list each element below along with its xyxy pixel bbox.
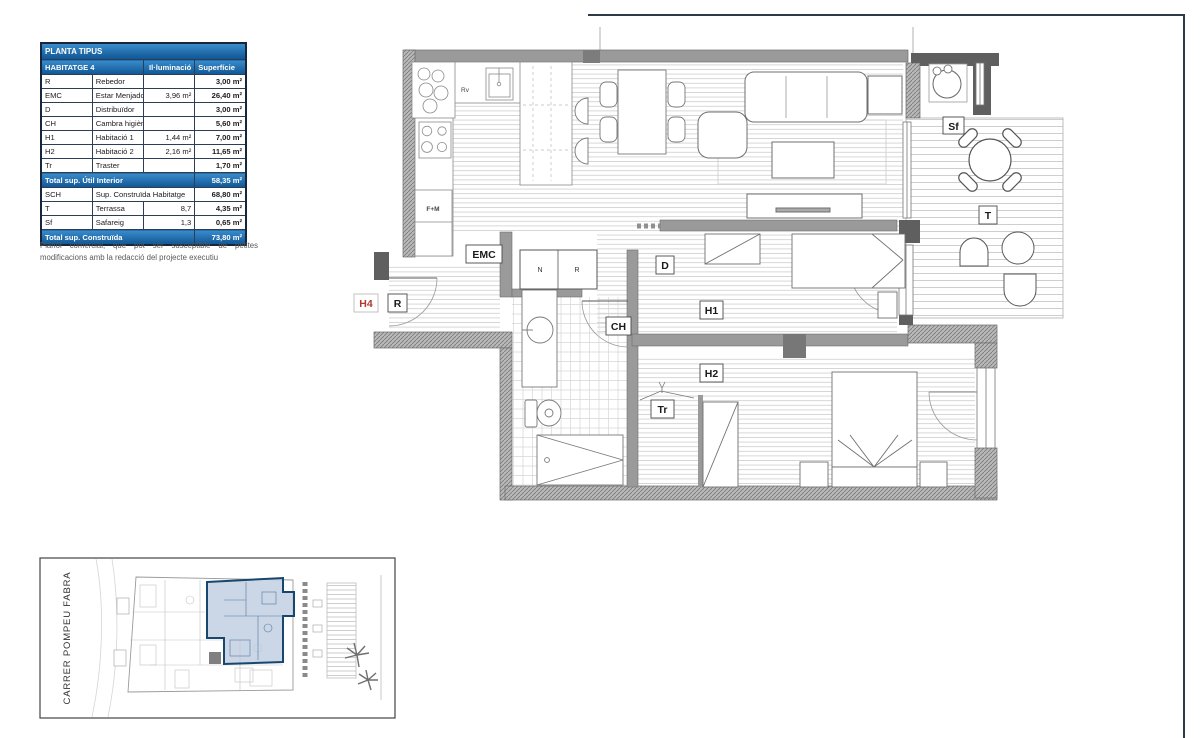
wall-entry-pier	[374, 252, 389, 280]
surface-table-container: PLANTA TIPUS HABITATGE 4 Il·luminació Su…	[40, 42, 247, 246]
laundry	[929, 64, 967, 102]
label-cambra-higienica: CH	[606, 317, 631, 335]
dining-table	[618, 70, 666, 154]
label-emc: EMC	[466, 245, 502, 263]
wall-h1-h2	[632, 334, 908, 346]
kitchen-corner-sink	[412, 62, 455, 118]
label-habitacio2: H2	[700, 364, 723, 382]
wall-h2-east-top	[975, 343, 997, 368]
svg-text:R: R	[394, 298, 402, 310]
site-balcony	[117, 598, 129, 614]
site-stairs	[327, 583, 356, 678]
closet-n-label: N	[537, 267, 542, 274]
wall-ne-band	[908, 325, 997, 343]
commercial-note: Plànol comercial, que pot ser susceptibl…	[40, 240, 258, 264]
label-distribuidor: D	[656, 256, 674, 274]
label-terrassa: T	[979, 206, 997, 224]
lounge-chair	[1004, 274, 1036, 306]
dining-chair	[668, 82, 685, 107]
h2-nightstand-right	[920, 462, 947, 487]
armchair	[698, 112, 747, 158]
site-stairwell	[209, 652, 221, 664]
wall-sf-west	[906, 63, 920, 118]
terrace-table	[969, 139, 1011, 181]
table-row: R Rebedor 3,00 m²	[41, 75, 246, 89]
svg-text:CH: CH	[611, 321, 626, 333]
svg-text:Sf: Sf	[948, 121, 959, 133]
wall-entry-east	[500, 232, 512, 297]
vanity-sink	[522, 290, 557, 387]
h1-nightstand	[878, 292, 897, 318]
wall-bath-east	[627, 250, 638, 487]
dining-chair	[600, 117, 617, 142]
table-row: CH Cambra higiènica 5,60 m²	[41, 117, 246, 131]
sofa	[745, 72, 867, 122]
shower	[537, 435, 623, 485]
label-traster: Tr	[651, 400, 674, 418]
wall-traster	[698, 395, 703, 487]
label-safareig: Sf	[943, 117, 964, 134]
wall-h1-north	[660, 220, 897, 231]
lounge-chair	[960, 238, 988, 266]
coffee-table	[772, 142, 834, 178]
svg-text:EMC: EMC	[472, 249, 496, 261]
wall-bath-west	[500, 348, 512, 500]
table-row: T Terrassa 8,7 4,35 m²	[41, 202, 246, 216]
total-util-row: Total sup. Útil Interior 58,35 m²	[41, 173, 246, 188]
column-h1-h2	[783, 334, 806, 358]
tv	[776, 208, 830, 212]
col-header-name: HABITATGE 4	[41, 60, 144, 75]
table-row: Tr Traster 1,70 m²	[41, 159, 246, 173]
label-unit-h4: H4	[354, 294, 378, 312]
pier-h1-window	[899, 315, 913, 325]
svg-text:T: T	[985, 210, 992, 222]
built-surface-row: SCH Sup. Construïda Habitatge 68,80 m²	[41, 188, 246, 202]
street-label: CARRER POMPEU FABRA	[62, 572, 73, 705]
h2-bed	[832, 372, 917, 487]
cooktop	[419, 122, 451, 158]
svg-text:H2: H2	[705, 368, 719, 380]
svg-text:H4: H4	[359, 298, 373, 310]
wall-joint	[583, 50, 600, 63]
kitchen-island	[520, 62, 572, 185]
window-h2	[977, 368, 995, 448]
label-fm: F+M	[426, 206, 439, 213]
dining-chair	[600, 82, 617, 107]
wall-entry-south	[374, 332, 512, 348]
side-table	[868, 76, 902, 114]
svg-text:D: D	[661, 260, 669, 272]
table-row: D Distribuïdor 3,00 m²	[41, 103, 246, 117]
table-row: H1 Habitació 1 1,44 m² 7,00 m²	[41, 131, 246, 145]
h2-wardrobe	[703, 402, 738, 487]
svg-text:Tr: Tr	[658, 404, 668, 416]
col-header-illumination: Il·luminació	[144, 60, 195, 75]
wall-south	[505, 486, 997, 500]
h1-desk	[705, 234, 760, 264]
main-floorplan: N R	[354, 50, 1063, 500]
table-title: PLANTA TIPUS	[41, 43, 246, 60]
wall-north	[405, 50, 908, 62]
lounge-table	[1002, 232, 1034, 264]
label-habitacio1: H1	[700, 301, 723, 319]
tv-console	[747, 194, 862, 218]
window-living-terrace	[903, 122, 911, 218]
label-rv: Rv	[461, 87, 470, 94]
site-plan: CARRER POMPEU FABRA	[40, 558, 395, 718]
fridge-microwave-unit	[415, 190, 452, 256]
toilet	[525, 400, 561, 427]
label-rebedor: R	[388, 294, 407, 312]
table-row: EMC Estar Menjador Cuina 3,96 m² 26,40 m…	[41, 89, 246, 103]
dining-chair	[668, 117, 685, 142]
surface-table: PLANTA TIPUS HABITATGE 4 Il·luminació Su…	[40, 42, 247, 246]
h1-bed	[792, 234, 905, 288]
table-row: H2 Habitació 2 2,16 m² 11,65 m²	[41, 145, 246, 159]
window-sf	[976, 63, 984, 105]
h2-nightstand-left	[800, 462, 828, 487]
wall-h2-east-bottom	[975, 448, 997, 498]
svg-text:H1: H1	[705, 305, 719, 317]
plan-sheet: N R	[0, 0, 1200, 738]
site-balcony	[114, 650, 126, 666]
closet-r-label: R	[574, 267, 579, 274]
sink-unit	[486, 68, 513, 100]
table-row: Sf Safareig 1,3 0,65 m²	[41, 216, 246, 230]
col-header-surface: Superfície	[195, 60, 246, 75]
hall-wardrobe: N R	[520, 250, 597, 289]
